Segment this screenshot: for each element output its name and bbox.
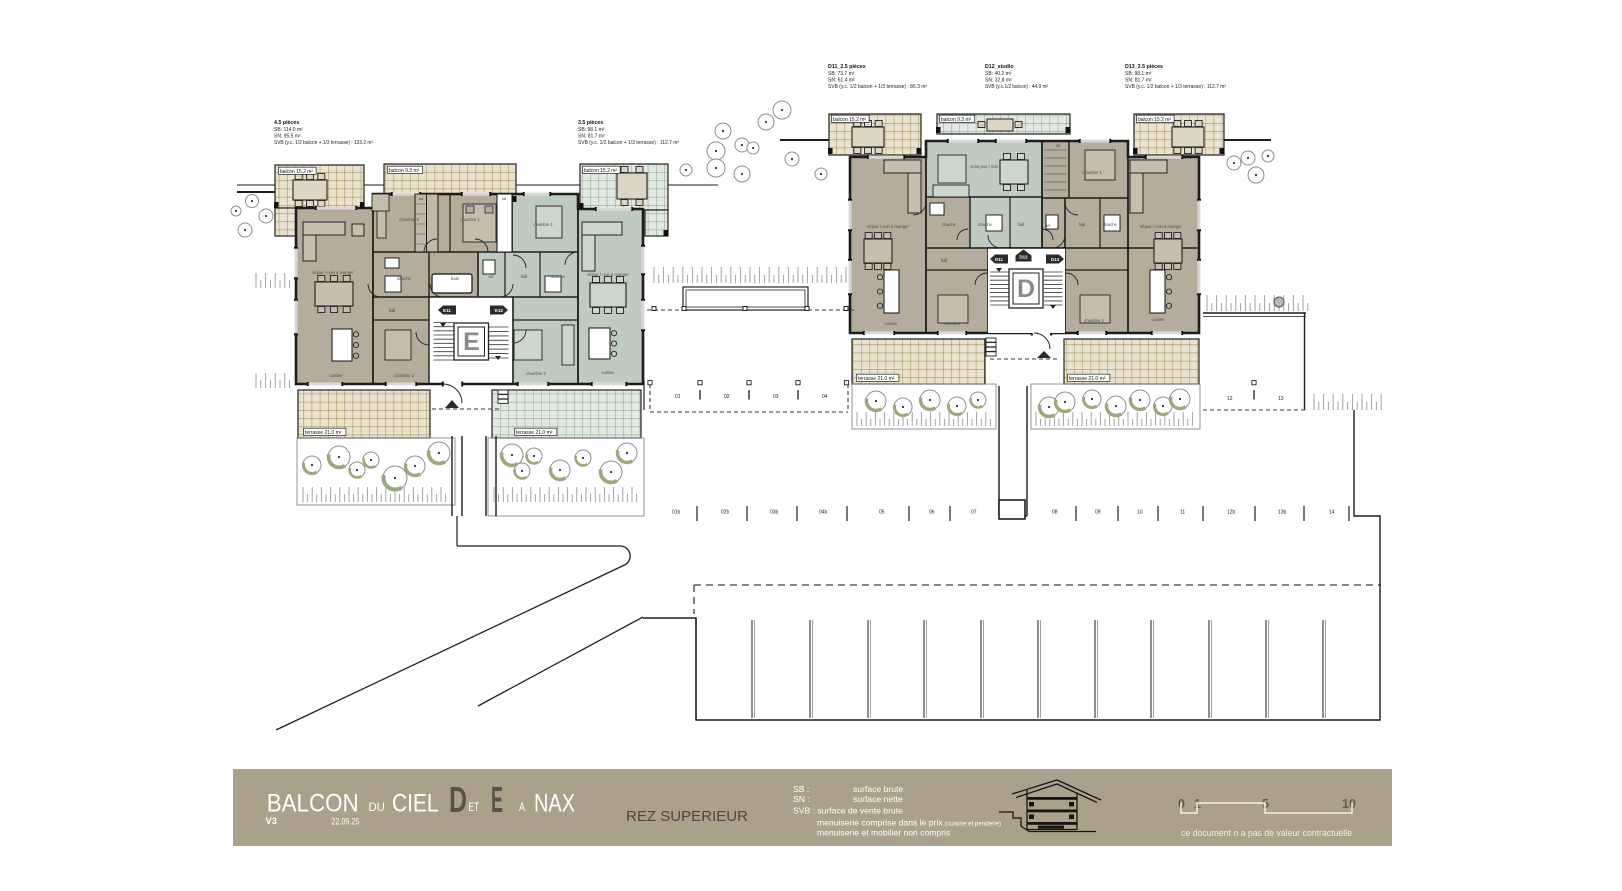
svg-text:chambre 2: chambre 2 <box>399 217 419 222</box>
svg-text:sd: sd <box>502 197 506 201</box>
svg-text:A: A <box>519 801 525 814</box>
svg-text:balcon 15.2 m²: balcon 15.2 m² <box>833 117 866 123</box>
svg-text:sd: sd <box>419 197 423 201</box>
svg-text:terrasse 21.0 m²: terrasse 21.0 m² <box>516 430 553 436</box>
svg-text:menuiserie et mobilier non com: menuiserie et mobilier non compris <box>817 828 950 838</box>
svg-text:E: E <box>491 779 503 820</box>
svg-text:V3: V3 <box>266 816 277 826</box>
svg-text:3.5 pièces: 3.5 pièces <box>578 120 603 126</box>
svg-text:hall: hall <box>521 274 528 279</box>
svg-text:balcon 9.3 m²: balcon 9.3 m² <box>389 168 420 174</box>
svg-text:zone jour / nuit: zone jour / nuit <box>970 164 998 169</box>
svg-text:chambre 2: chambre 2 <box>1084 318 1104 323</box>
svg-text:SB: 98.1 m²: SB: 98.1 m² <box>1125 71 1152 77</box>
svg-text:cuisine: cuisine <box>1151 317 1165 322</box>
svg-text:01b: 01b <box>672 510 681 516</box>
svg-text:SB: 73.7 m²: SB: 73.7 m² <box>828 71 855 77</box>
svg-text:chambre 1: chambre 1 <box>460 217 480 222</box>
svg-text:wc: wc <box>488 274 493 279</box>
svg-text:hall: hall <box>1018 222 1025 227</box>
svg-text:04b: 04b <box>819 510 828 516</box>
svg-text:D12_studio: D12_studio <box>985 64 1014 70</box>
svg-text:13b: 13b <box>1278 510 1287 516</box>
svg-text:02: 02 <box>724 394 730 400</box>
svg-text:REZ SUPERIEUR: REZ SUPERIEUR <box>626 808 748 825</box>
svg-text:séjour / coin à manger: séjour / coin à manger <box>1140 224 1182 229</box>
svg-text:SVB : surface de vente brute: SVB : surface de vente brute <box>793 806 903 816</box>
svg-text:douche: douche <box>978 222 992 227</box>
svg-text:SN: 81.7 m²: SN: 81.7 m² <box>578 134 605 140</box>
svg-text:10: 10 <box>1342 797 1356 811</box>
svg-text:D13_3.5 pièces: D13_3.5 pièces <box>1125 64 1163 70</box>
svg-text:chambre: chambre <box>944 321 961 326</box>
svg-text:E12: E12 <box>495 308 504 313</box>
svg-text:SVB (y.c. 1/2 balcon + 1/3 ter: SVB (y.c. 1/2 balcon + 1/3 terrasse) : 8… <box>828 84 927 90</box>
svg-text:douche: douche <box>1103 222 1117 227</box>
svg-text:08: 08 <box>1052 510 1058 516</box>
svg-text:4.5 pièces: 4.5 pièces <box>274 120 299 126</box>
svg-text:DU: DU <box>368 801 385 814</box>
svg-text:SN: 95.5 m²: SN: 95.5 m² <box>274 134 301 140</box>
svg-text:05: 05 <box>879 510 885 516</box>
svg-text:CIEL: CIEL <box>392 789 439 817</box>
svg-text:séjour / coin à manger: séjour / coin à manger <box>867 224 909 229</box>
svg-text:douche: douche <box>942 222 956 227</box>
svg-text:12b: 12b <box>1227 510 1236 516</box>
svg-text:hall: hall <box>1079 222 1086 227</box>
svg-text:chambre 2: chambre 2 <box>526 371 546 376</box>
svg-text:SVB (y.c. 1/2 balcon + 1/3 ter: SVB (y.c. 1/2 balcon + 1/3 terrasse) : 1… <box>274 140 373 146</box>
svg-text:07: 07 <box>971 510 977 516</box>
svg-text:NAX: NAX <box>534 789 575 817</box>
svg-text:SN: 32.8 m²: SN: 32.8 m² <box>985 78 1012 84</box>
svg-text:D13: D13 <box>1051 257 1060 262</box>
svg-text:04: 04 <box>822 394 828 400</box>
svg-text:D11_2.5 pièces: D11_2.5 pièces <box>828 64 866 70</box>
svg-text:14: 14 <box>1329 510 1335 516</box>
svg-text:SVB (y.c. 1/2 balcon + 1/3 ter: SVB (y.c. 1/2 balcon + 1/3 terrasse) : 1… <box>578 140 679 146</box>
svg-text:SN: 61.4 m²: SN: 61.4 m² <box>828 78 855 84</box>
svg-text:BALCON: BALCON <box>267 789 359 817</box>
svg-text:D: D <box>449 779 467 820</box>
svg-text:22.09.25: 22.09.25 <box>331 817 359 827</box>
svg-text:balcon 15.2 m²: balcon 15.2 m² <box>584 168 617 174</box>
svg-text:SVB (y.c. 1/2 balcon + 1/3 ter: SVB (y.c. 1/2 balcon + 1/3 terrasse) : 1… <box>1125 84 1226 90</box>
svg-text:cuisine: cuisine <box>884 321 898 326</box>
svg-text:D12: D12 <box>1019 255 1028 260</box>
svg-text:ET: ET <box>469 801 480 814</box>
svg-text:06: 06 <box>929 510 935 516</box>
svg-text:balcon 9.3 m²: balcon 9.3 m² <box>941 117 972 123</box>
svg-text:sd: sd <box>1056 143 1061 148</box>
svg-text:12: 12 <box>1227 396 1233 402</box>
svg-text:surface nette: surface nette <box>853 794 903 804</box>
svg-text:surface brute: surface brute <box>853 784 903 794</box>
svg-text:SN :: SN : <box>793 794 810 804</box>
svg-text:SB: 98.1 m²: SB: 98.1 m² <box>578 127 605 133</box>
svg-text:13: 13 <box>1278 396 1284 402</box>
svg-text:SB: 40.2 m²: SB: 40.2 m² <box>985 71 1012 77</box>
svg-text:SN: 81.7 m²: SN: 81.7 m² <box>1125 78 1152 84</box>
svg-text:D: D <box>1017 275 1035 303</box>
svg-text:D11: D11 <box>995 257 1004 262</box>
svg-text:cuisine: cuisine <box>601 370 615 375</box>
svg-text:SB: 114.0 m²: SB: 114.0 m² <box>274 127 303 133</box>
svg-text:03b: 03b <box>770 510 779 516</box>
svg-text:SVB (y.c.1/2 balcon) : 44.9 m²: SVB (y.c.1/2 balcon) : 44.9 m² <box>985 84 1048 90</box>
svg-text:wc: wc <box>1045 223 1050 228</box>
svg-text:terrasse 21.0 m²: terrasse 21.0 m² <box>858 376 895 382</box>
svg-text:03: 03 <box>773 394 779 400</box>
svg-text:E: E <box>463 328 480 356</box>
svg-text:hall: hall <box>941 258 948 263</box>
svg-text:chambre 1: chambre 1 <box>1082 170 1102 175</box>
svg-text:terrasse 21.0 m²: terrasse 21.0 m² <box>305 430 342 436</box>
svg-text:séjour / coin à manger: séjour / coin à manger <box>587 272 629 277</box>
svg-text:bain: bain <box>451 276 460 281</box>
svg-text:séjour / coin à manger: séjour / coin à manger <box>312 270 354 275</box>
svg-text:09: 09 <box>1095 510 1101 516</box>
svg-text:balcon 15.2 m²: balcon 15.2 m² <box>280 169 313 175</box>
svg-text:ce document n a pas de valeur: ce document n a pas de valeur contractue… <box>1181 828 1352 839</box>
svg-text:chambre 3: chambre 3 <box>394 373 414 378</box>
svg-text:chambre 1: chambre 1 <box>533 222 553 227</box>
svg-text:cuisine: cuisine <box>329 373 343 378</box>
svg-text:balcon 15.2 m²: balcon 15.2 m² <box>1138 117 1171 123</box>
svg-text:02b: 02b <box>721 510 730 516</box>
svg-text:douche: douche <box>551 274 565 279</box>
svg-text:11: 11 <box>1180 510 1185 516</box>
svg-text:10: 10 <box>1137 510 1143 516</box>
svg-text:terrasse 21.0 m²: terrasse 21.0 m² <box>1069 376 1106 382</box>
svg-text:hall: hall <box>389 308 396 313</box>
svg-text:SB :: SB : <box>793 784 809 794</box>
svg-text:douche: douche <box>397 276 411 281</box>
svg-text:01: 01 <box>675 394 681 400</box>
svg-text:E11: E11 <box>443 308 451 313</box>
